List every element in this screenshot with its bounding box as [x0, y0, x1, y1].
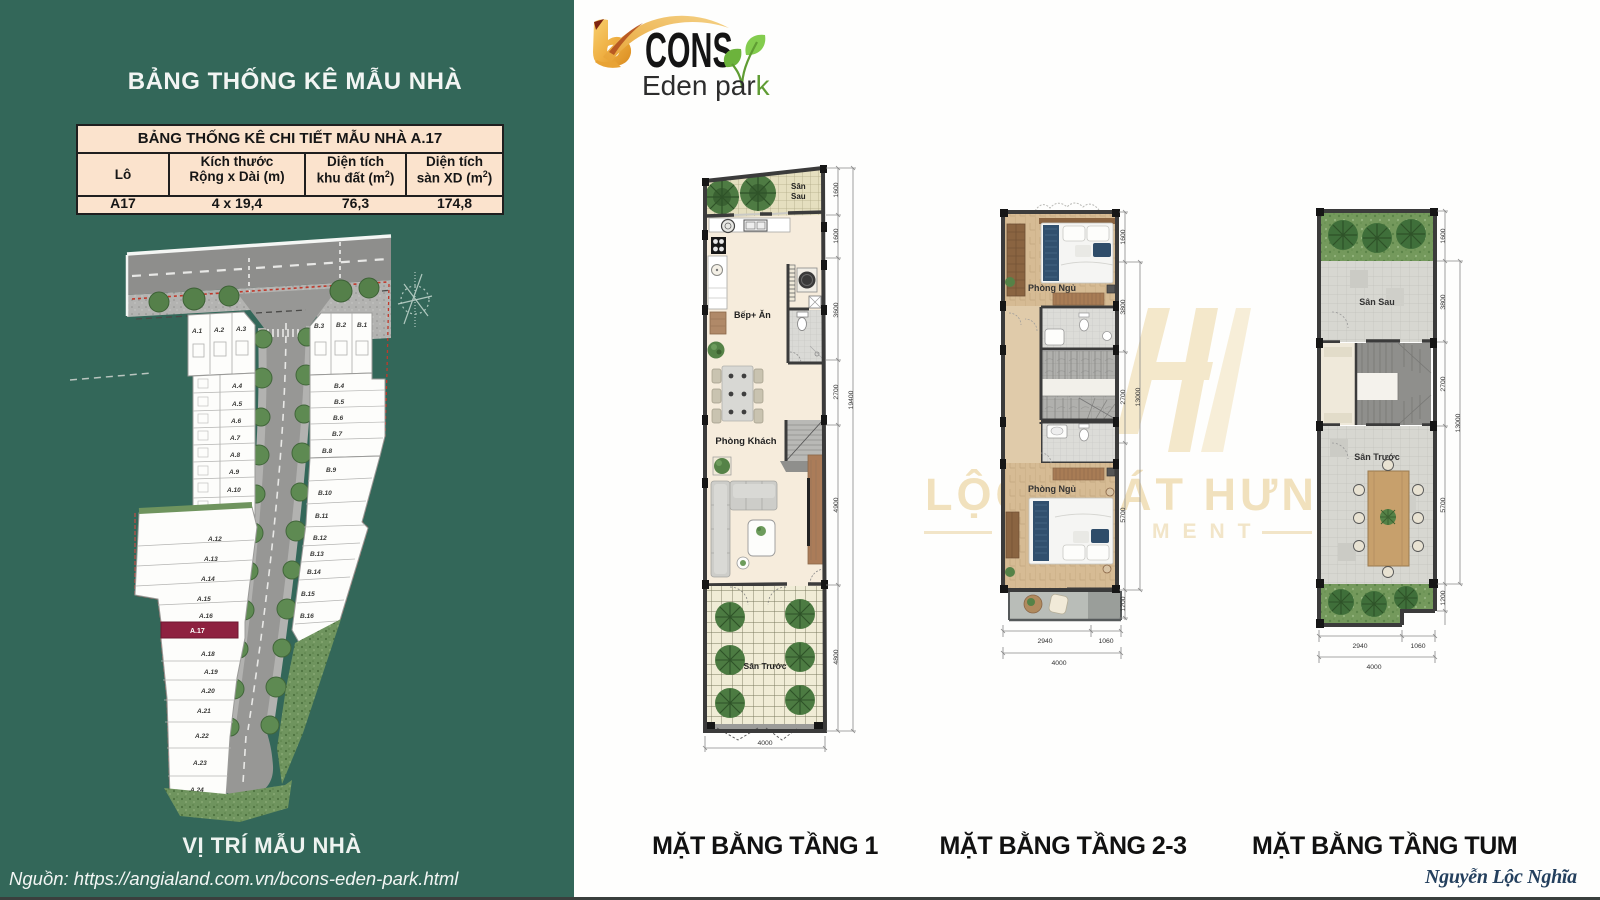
svg-text:2700: 2700 [833, 384, 840, 399]
svg-text:3800: 3800 [1440, 294, 1447, 309]
svg-text:3800: 3800 [1120, 299, 1127, 314]
svg-text:2940: 2940 [1037, 638, 1052, 645]
svg-text:B.7: B.7 [332, 431, 343, 438]
svg-text:1060: 1060 [1098, 638, 1113, 645]
svg-text:B.14: B.14 [307, 569, 321, 576]
svg-text:B.11: B.11 [315, 513, 329, 520]
svg-text:Sân Trước: Sân Trước [744, 661, 787, 671]
svg-text:Sau: Sau [791, 192, 806, 201]
svg-text:A.19: A.19 [203, 669, 218, 676]
svg-text:Sân Trước: Sân Trước [1354, 452, 1399, 462]
svg-text:A.1: A.1 [191, 328, 203, 335]
svg-text:1600: 1600 [1440, 228, 1447, 243]
svg-text:A.5: A.5 [231, 401, 243, 408]
svg-text:B.1: B.1 [357, 322, 368, 329]
svg-text:13000: 13000 [1455, 413, 1462, 432]
svg-text:A.2: A.2 [213, 327, 225, 334]
svg-text:A.10: A.10 [226, 487, 241, 494]
svg-text:B.8: B.8 [322, 448, 333, 455]
svg-text:2700: 2700 [1440, 376, 1447, 391]
svg-text:4000: 4000 [1366, 664, 1381, 671]
svg-text:A.9: A.9 [228, 469, 240, 476]
svg-text:B.13: B.13 [310, 551, 324, 558]
svg-text:19400: 19400 [848, 390, 855, 409]
svg-text:B.5: B.5 [334, 399, 345, 406]
svg-text:4800: 4800 [833, 649, 840, 664]
svg-text:A.4: A.4 [231, 383, 243, 390]
svg-text:A.15: A.15 [196, 596, 211, 603]
svg-text:4900: 4900 [833, 497, 840, 512]
svg-text:Phòng Ngủ: Phòng Ngủ [1028, 283, 1076, 293]
svg-text:Sân: Sân [791, 182, 806, 191]
svg-text:B.3: B.3 [314, 323, 325, 330]
svg-text:A.13: A.13 [203, 556, 218, 563]
svg-text:Phòng Khách: Phòng Khách [715, 436, 776, 447]
svg-text:A.7: A.7 [229, 435, 241, 442]
svg-text:B.12: B.12 [313, 535, 327, 542]
svg-text:1600: 1600 [1120, 229, 1127, 244]
svg-text:A.20: A.20 [200, 688, 215, 695]
svg-text:Phòng Ngủ: Phòng Ngủ [1028, 484, 1076, 494]
svg-text:B.9: B.9 [326, 467, 337, 474]
svg-text:A.22: A.22 [194, 733, 209, 740]
svg-text:A.16: A.16 [198, 613, 213, 620]
svg-text:2940: 2940 [1352, 643, 1367, 650]
svg-text:1200: 1200 [1120, 596, 1127, 611]
svg-text:B.2: B.2 [336, 322, 347, 329]
svg-text:A.14: A.14 [200, 576, 215, 583]
svg-text:1600: 1600 [833, 182, 840, 197]
svg-text:B.4: B.4 [334, 383, 345, 390]
svg-text:5700: 5700 [1120, 507, 1127, 522]
svg-text:A.8: A.8 [229, 452, 241, 459]
svg-text:13000: 13000 [1135, 387, 1142, 406]
svg-text:4000: 4000 [1051, 660, 1066, 667]
svg-text:B.15: B.15 [301, 591, 315, 598]
svg-text:4000: 4000 [757, 740, 772, 747]
svg-text:B.6: B.6 [333, 415, 344, 422]
svg-text:A.23: A.23 [192, 760, 207, 767]
svg-text:A.12: A.12 [207, 536, 222, 543]
svg-text:Bếp+ Ăn: Bếp+ Ăn [734, 310, 771, 320]
svg-text:A.18: A.18 [200, 651, 215, 658]
svg-text:A.17: A.17 [190, 628, 205, 635]
svg-text:1600: 1600 [833, 228, 840, 243]
svg-text:A.3: A.3 [235, 326, 247, 333]
svg-text:5700: 5700 [1440, 497, 1447, 512]
svg-text:3600: 3600 [833, 302, 840, 317]
svg-text:1060: 1060 [1410, 643, 1425, 650]
svg-text:2700: 2700 [1120, 389, 1127, 404]
svg-text:A.21: A.21 [196, 708, 211, 715]
svg-text:Sân Sau: Sân Sau [1359, 297, 1395, 307]
svg-text:Eden park: Eden park [642, 70, 771, 101]
svg-text:B.10: B.10 [318, 490, 332, 497]
svg-text:1200: 1200 [1440, 590, 1447, 605]
svg-text:B.16: B.16 [300, 613, 314, 620]
svg-text:A.6: A.6 [230, 418, 242, 425]
